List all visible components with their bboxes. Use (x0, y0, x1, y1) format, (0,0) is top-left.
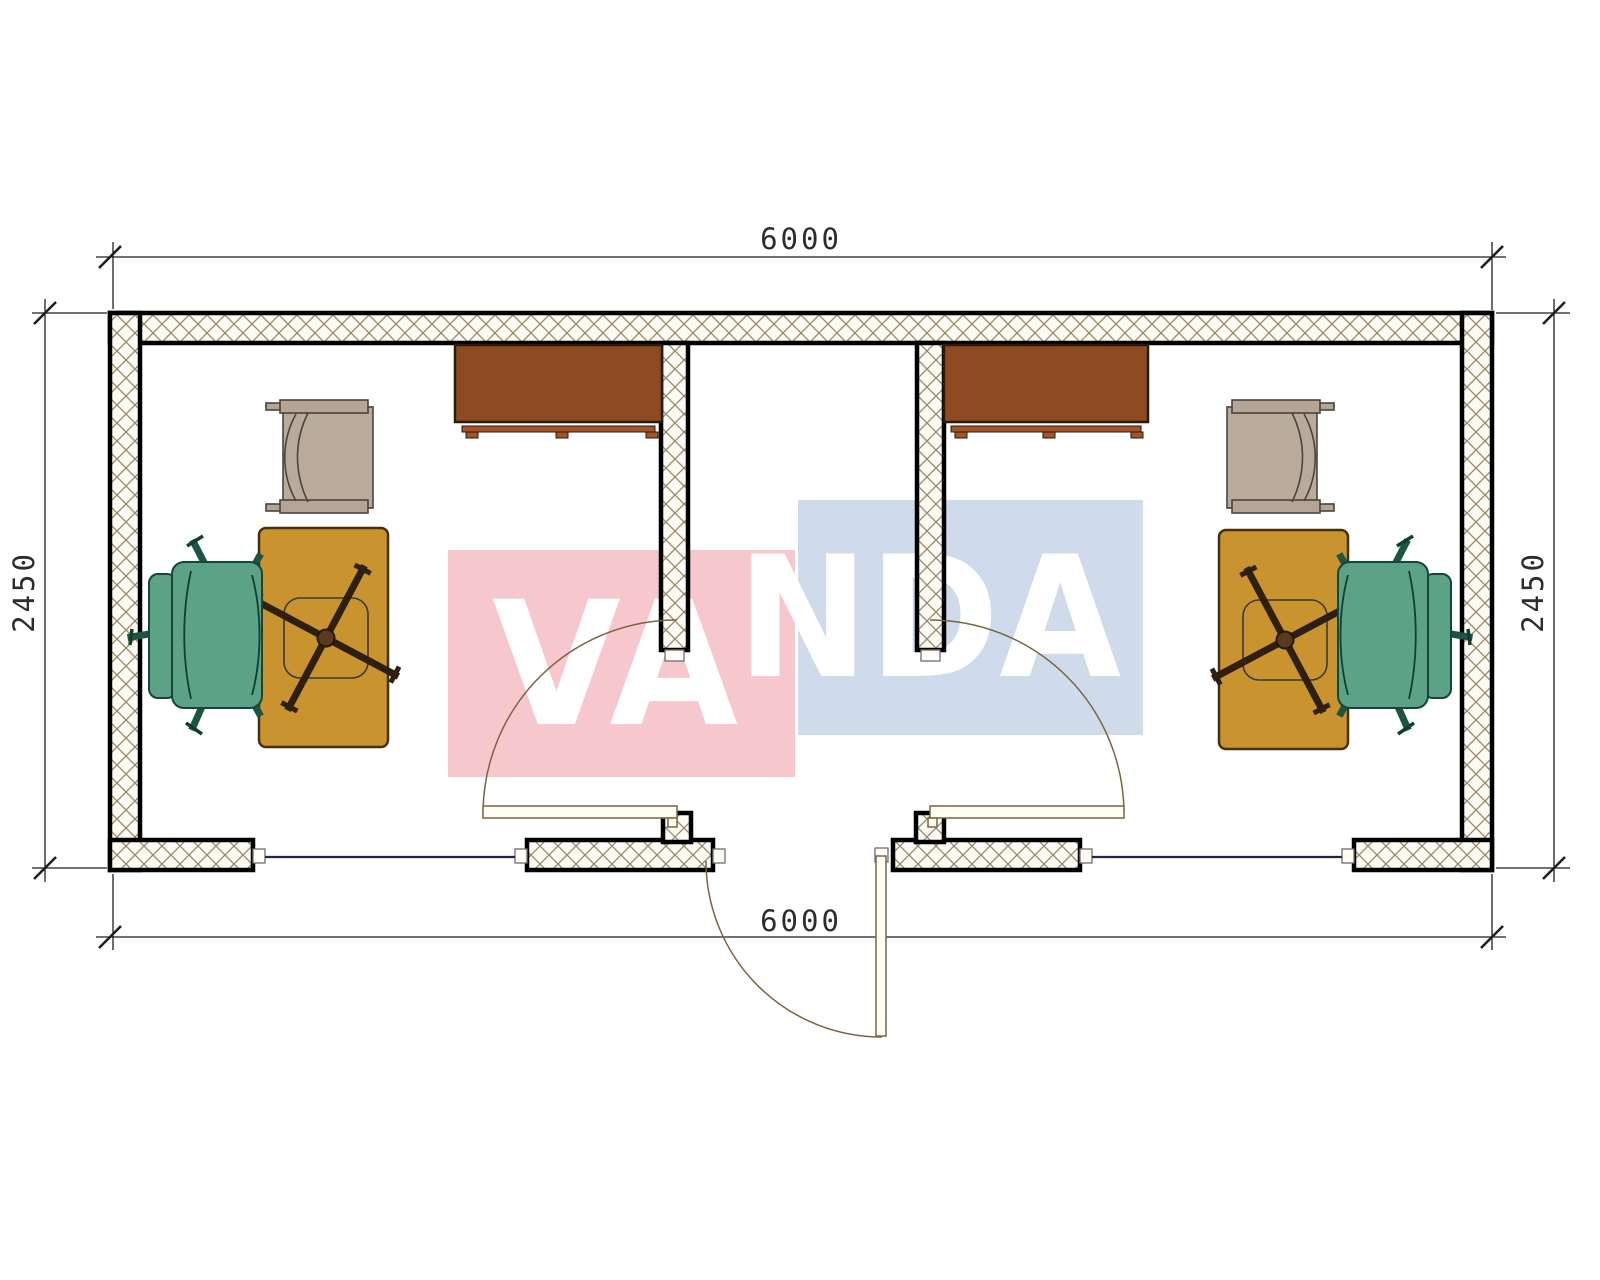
chair-seat (1338, 562, 1428, 708)
cabinet-trim (462, 426, 655, 432)
door-leaf (876, 856, 886, 1036)
dim-label-bottom: 6000 (760, 904, 842, 938)
partition-tip-jamb (921, 650, 940, 661)
jamb (713, 849, 725, 863)
partition-tip-jamb (665, 650, 684, 661)
wall-bottom-segment (527, 840, 713, 870)
dimension-bottom: 6000 (96, 874, 1506, 950)
jamb (253, 849, 265, 863)
wall-bottom-segment (1354, 840, 1492, 870)
chair-seat (172, 562, 262, 708)
wall-right (1462, 313, 1492, 870)
jamb (1342, 849, 1354, 863)
armchair-seat (283, 407, 373, 508)
floor-plan-drawing: VA NDA 6000 6000 2450 (0, 0, 1600, 1280)
armchair-armrest (1232, 400, 1320, 413)
wall-bottom-segment (893, 840, 1080, 870)
wall-top (110, 313, 1492, 343)
office-chair (130, 536, 262, 734)
cabinet-foot (556, 432, 568, 438)
door-hinge-block (928, 818, 937, 827)
cabinet (944, 345, 1148, 438)
cabinet-foot (466, 432, 478, 438)
watermark: VA NDA (448, 500, 1143, 777)
jamb (515, 849, 527, 863)
dim-label-left: 2450 (7, 551, 41, 633)
jamb (1080, 849, 1092, 863)
wall-left (110, 313, 140, 870)
cabinet-body (944, 345, 1148, 422)
door-leaf (483, 806, 677, 818)
dimension-right: 2450 (1496, 299, 1570, 882)
floor-plan-page: VA NDA 6000 6000 2450 (0, 0, 1600, 1280)
door-hinge-block (668, 818, 677, 827)
chair-foot (130, 629, 132, 645)
armchair (266, 400, 373, 513)
partition-right (917, 343, 944, 650)
door-entrance (706, 856, 886, 1037)
cabinet-trim (951, 426, 1141, 432)
cabinet-foot (955, 432, 967, 438)
door-leaf (930, 806, 1124, 818)
dim-label-right: 2450 (1516, 551, 1550, 633)
chair-foot (1468, 629, 1470, 645)
dimension-left: 2450 (7, 299, 107, 882)
cabinet-body (455, 345, 662, 422)
wall-bottom-segment (110, 840, 253, 870)
cabinet-foot (1043, 432, 1055, 438)
armchair-armrest (280, 400, 368, 413)
door-swing-arc (706, 861, 882, 1037)
dim-label-top: 6000 (760, 222, 842, 256)
partition-left (661, 343, 688, 650)
armchair-armrest (1232, 500, 1320, 513)
armchair-armrest (280, 500, 368, 513)
cabinet-foot (646, 432, 658, 438)
cabinet-foot (1131, 432, 1143, 438)
office-chair (1338, 536, 1470, 734)
armchair (1227, 400, 1334, 513)
dimension-top: 6000 (96, 222, 1506, 310)
cabinet (455, 345, 662, 438)
armchair-seat (1227, 407, 1317, 508)
watermark-text-left: VA (492, 564, 738, 765)
